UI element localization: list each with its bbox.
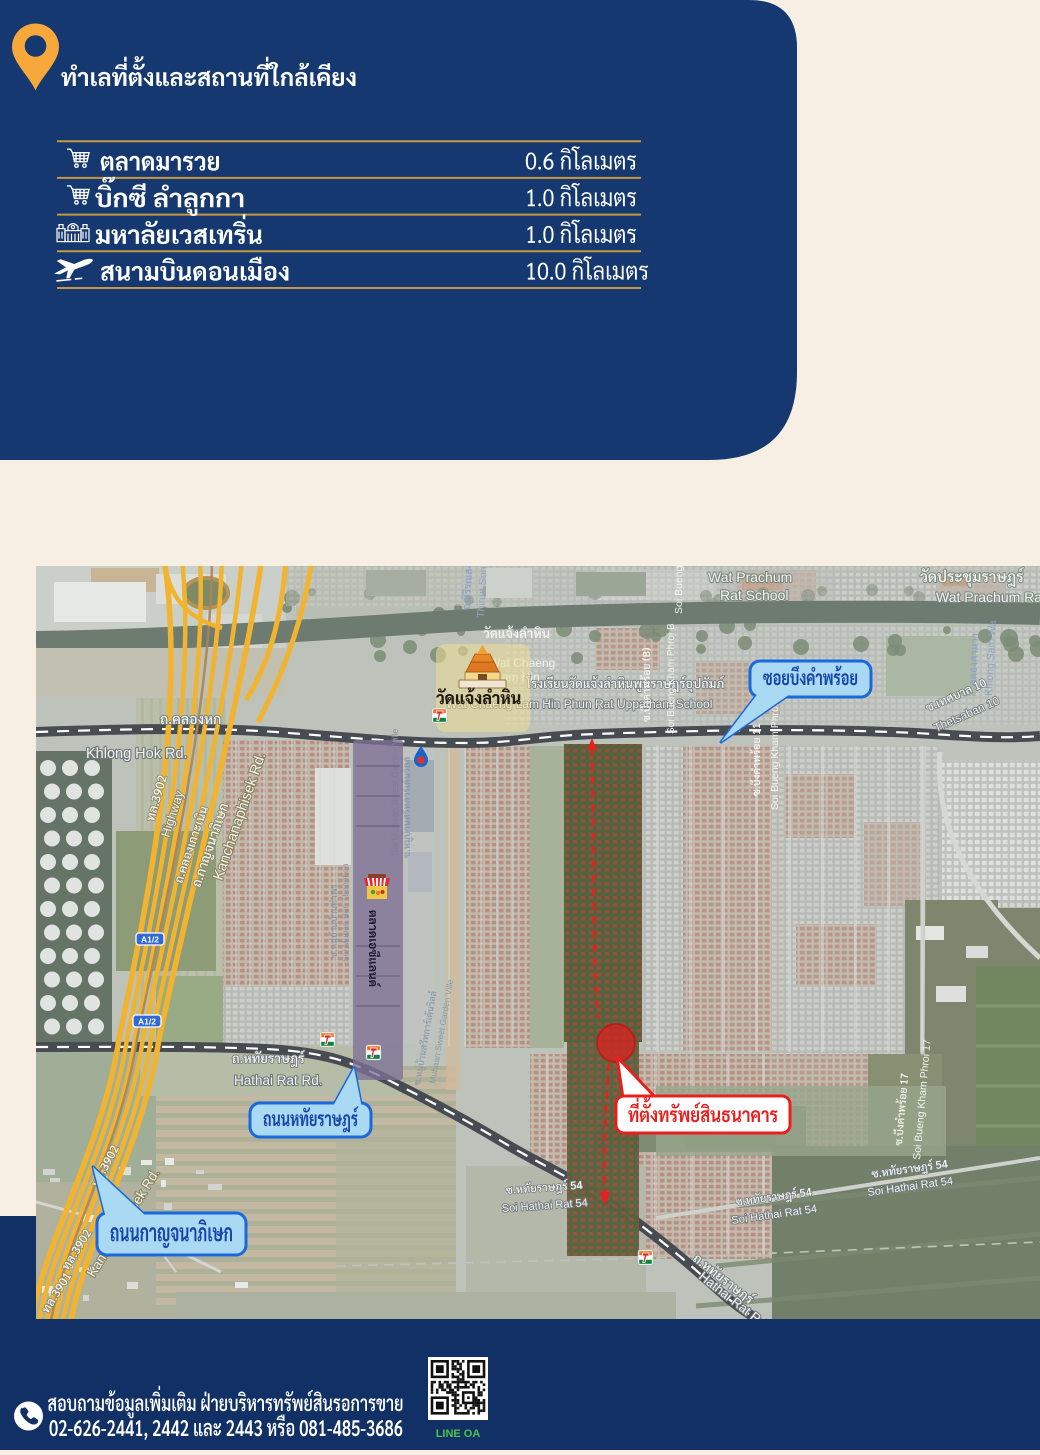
svg-text:LINE OA: LINE OA: [436, 1428, 481, 1440]
svg-text:Wat Prachum: Wat Prachum: [708, 569, 792, 585]
svg-text:A1/2: A1/2: [138, 1017, 156, 1027]
svg-text:Wat Prachum Rat: Wat Prachum Rat: [936, 589, 1040, 605]
svg-text:Khlong Hok Rd.: Khlong Hok Rd.: [86, 746, 188, 762]
svg-text:Soi Muban Ban Thanphon: Soi Muban Ban Thanphon: [340, 863, 350, 962]
svg-text:Hathai Rat Rd.: Hathai Rat Rd.: [234, 1073, 323, 1088]
svg-text:Rat School: Rat School: [720, 587, 788, 603]
svg-text:A1/2: A1/2: [141, 935, 159, 945]
svg-text:Soi Bueng Kham Phroi B: Soi Bueng Kham Phroi B: [666, 623, 677, 734]
